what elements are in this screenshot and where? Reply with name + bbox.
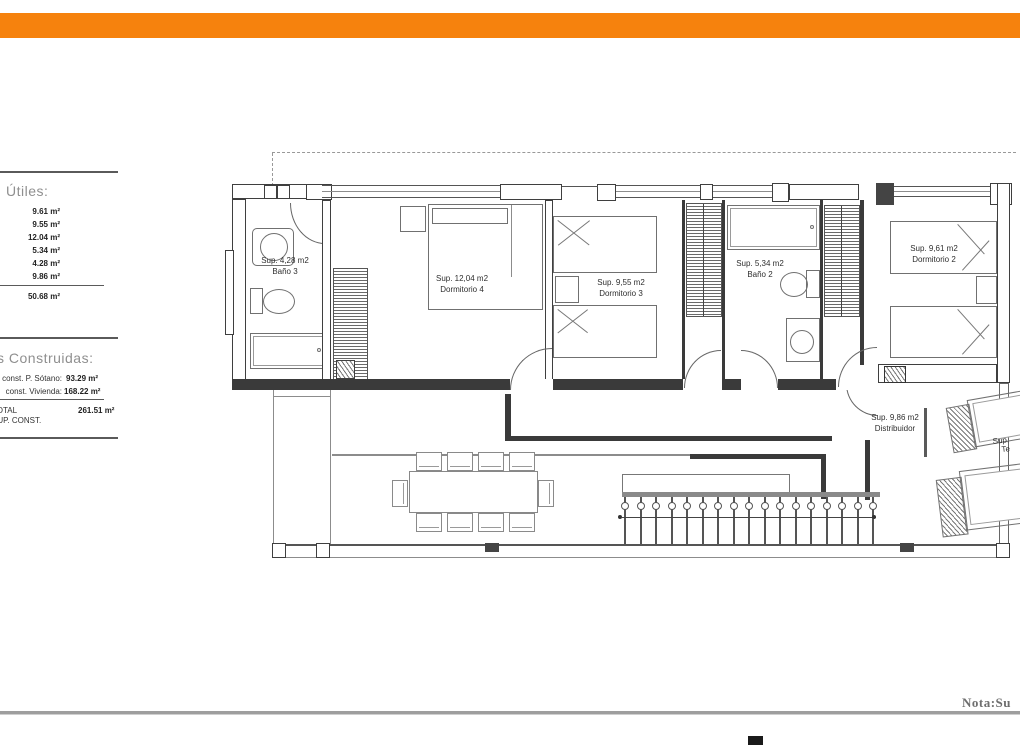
room-label-bano3: Sup. 4,28 m2 Baño 3: [261, 255, 309, 277]
section-dot: [618, 515, 622, 519]
sidebar-useful-areas: Útiles: 9.61 m² 9.55 m² 12.04 m² 5.34 m²…: [0, 0, 160, 340]
plot-boundary-line: [272, 153, 273, 186]
chair: [416, 452, 442, 471]
chair: [538, 480, 554, 507]
slat-knob: [683, 502, 691, 510]
useful-areas-title: Útiles:: [6, 183, 48, 199]
area-value: 5.34 m²: [0, 246, 60, 255]
wall-pillar: [876, 183, 894, 205]
room-label-dorm2: Sup. 9,61 m2 Dormitorio 2: [910, 243, 958, 265]
divider: [0, 171, 118, 173]
footer-note: Nota:Su: [962, 695, 1011, 711]
room-label-bano2: Sup. 5,34 m2 Baño 2: [736, 258, 784, 280]
slat-knob: [714, 502, 722, 510]
toilet-bowl: [263, 289, 295, 314]
wall-segment: [789, 184, 859, 200]
room-name: Distribuidor: [871, 423, 919, 434]
wall-segment: [322, 200, 331, 390]
area-value: 12.04 m²: [0, 233, 60, 242]
terrace-line: [273, 390, 274, 545]
chair: [478, 452, 504, 471]
room-name: Baño 3: [261, 266, 309, 277]
built-row-label: const. P. Sótano:: [0, 374, 62, 383]
sink-basin: [790, 330, 814, 354]
closet-hatched: [686, 203, 722, 317]
wall-segment: [722, 200, 725, 390]
pergola-frame: [622, 474, 790, 493]
wall-marker: [900, 543, 914, 552]
window-line: [894, 191, 990, 192]
window-line: [616, 185, 700, 186]
wall-marker: [485, 543, 499, 552]
window-line: [713, 197, 772, 198]
plot-boundary-line: [272, 152, 1016, 153]
room-label-distribuidor: Sup. 9,86 m2 Distribuidor: [871, 412, 919, 434]
lounger-inner: [964, 466, 1020, 525]
door-arc: [290, 203, 325, 244]
terrace-line: [330, 390, 331, 545]
slat-knob: [761, 502, 769, 510]
chair: [509, 513, 535, 532]
parapet-pillar: [316, 543, 330, 558]
closet-spine: [703, 204, 704, 316]
room-area: Sup. 9,55 m2: [597, 277, 645, 288]
window-line: [562, 186, 598, 187]
built-row-value: 93.29 m²: [66, 374, 98, 383]
chair: [416, 513, 442, 532]
bed-divider: [511, 205, 512, 277]
door-arc: [684, 350, 721, 388]
partial-title-glyph: [748, 736, 763, 745]
nightstand: [400, 206, 426, 232]
area-value: 9.55 m²: [0, 220, 60, 229]
pillow: [432, 208, 508, 224]
chair: [478, 513, 504, 532]
wall-pillar: [597, 184, 616, 201]
area-value: 9.61 m²: [0, 207, 60, 216]
footer-divider: [0, 714, 1020, 715]
wall-segment: [505, 394, 511, 440]
terrace-line: [273, 396, 330, 397]
wall-segment: [505, 436, 832, 441]
window-line: [713, 185, 772, 186]
slat-knob: [652, 502, 660, 510]
slat-knob: [745, 502, 753, 510]
section-dot: [872, 515, 876, 519]
chair: [447, 452, 473, 471]
window-line: [894, 186, 990, 187]
wall-segment: [500, 184, 562, 200]
built-areas-title: s Construidas:: [0, 350, 93, 366]
room-name: Te: [993, 444, 1010, 455]
built-total-label: SUP. CONST.: [0, 416, 41, 425]
nightstand: [555, 276, 579, 303]
bathtub-drain: [810, 225, 814, 229]
slat-knob: [807, 502, 815, 510]
bathtub-inner: [730, 208, 817, 247]
wall-bump: [225, 250, 234, 335]
built-row-label: const. Vivienda:: [0, 387, 62, 396]
divider: [0, 437, 118, 439]
wall-pillar: [772, 183, 789, 202]
window-line: [322, 185, 502, 186]
built-total-value: 261.51 m²: [78, 406, 114, 415]
room-label-dorm4: Sup. 12,04 m2 Dormitorio 4: [436, 273, 488, 295]
door-arc: [838, 347, 877, 387]
window-line: [616, 191, 700, 192]
chair: [392, 480, 408, 507]
built-row-value: 168.22 m²: [64, 387, 100, 396]
wardrobe-block: [336, 360, 355, 379]
slat-knob: [776, 502, 784, 510]
window-line: [322, 191, 502, 192]
room-area: Sup. 5,34 m2: [736, 258, 784, 269]
bathtub-drain: [317, 348, 321, 352]
room-area: Sup. 4,28 m2: [261, 255, 309, 266]
room-name: Dormitorio 3: [597, 288, 645, 299]
wall-pillar: [700, 184, 713, 200]
room-area: Sup. 9,86 m2: [871, 412, 919, 423]
wall-segment: [682, 200, 685, 390]
door-arc: [510, 348, 552, 390]
wall-pillar: [884, 366, 906, 383]
area-value: 4.28 m²: [0, 259, 60, 268]
chair: [447, 513, 473, 532]
wall-segment: [860, 200, 864, 365]
room-name: Dormitorio 2: [910, 254, 958, 265]
floor-plan-sheet: { "colors": { "header_bar": "#f6820d" },…: [0, 0, 1020, 745]
slat-knob: [730, 502, 738, 510]
room-area: Sup. 9,61 m2: [910, 243, 958, 254]
sun-lounger: [935, 461, 1020, 544]
bathtub-inner: [253, 336, 325, 366]
slat-knob: [869, 502, 877, 510]
wall-segment: [820, 200, 823, 390]
nightstand: [976, 276, 997, 304]
window-line: [713, 191, 772, 192]
window-line: [616, 197, 700, 198]
room-label-dorm3: Sup. 9,55 m2 Dormitorio 3: [597, 277, 645, 299]
parapet-pillar: [272, 543, 286, 558]
slat-knob: [838, 502, 846, 510]
slat-knob: [823, 502, 831, 510]
bed-single: [553, 305, 657, 358]
wall-segment: [924, 408, 927, 457]
room-name: Baño 2: [736, 269, 784, 280]
window-line: [322, 197, 502, 198]
wall-pillar: [277, 185, 290, 199]
divider: [0, 399, 104, 400]
window-line: [894, 196, 990, 197]
toilet-tank: [806, 270, 820, 298]
divider: [0, 285, 104, 286]
toilet-tank: [250, 288, 263, 314]
closet-spine: [841, 206, 842, 316]
door-arc: [741, 350, 778, 388]
parapet-pillar: [996, 543, 1010, 558]
slat-knob: [854, 502, 862, 510]
section-line: [622, 517, 876, 518]
wall-segment: [690, 454, 826, 459]
useful-total-value: 50.68 m²: [0, 292, 60, 301]
slat-knob: [668, 502, 676, 510]
built-total-label: TOTAL: [0, 406, 17, 415]
parapet-line: [273, 557, 1010, 558]
sidebar-built-areas: s Construidas: const. P. Sótano: 93.29 m…: [0, 330, 160, 450]
wall-segment: [865, 440, 870, 500]
toilet-bowl: [780, 272, 808, 297]
chair: [509, 452, 535, 471]
divider: [0, 337, 118, 339]
slat-knob: [792, 502, 800, 510]
slat-knob: [637, 502, 645, 510]
room-label-terraza: Sup. Te: [992, 435, 1010, 455]
wall-segment: [232, 199, 246, 380]
slat-knob: [699, 502, 707, 510]
wall-pillar: [264, 185, 277, 199]
closet-hatched: [824, 205, 860, 317]
dining-table: [409, 471, 538, 513]
bed-single: [553, 216, 657, 273]
room-area: Sup. 12,04 m2: [436, 273, 488, 284]
slat-knob: [621, 502, 629, 510]
room-name: Dormitorio 4: [436, 284, 488, 295]
area-value: 9.86 m²: [0, 272, 60, 281]
wall-segment: [997, 183, 1010, 383]
